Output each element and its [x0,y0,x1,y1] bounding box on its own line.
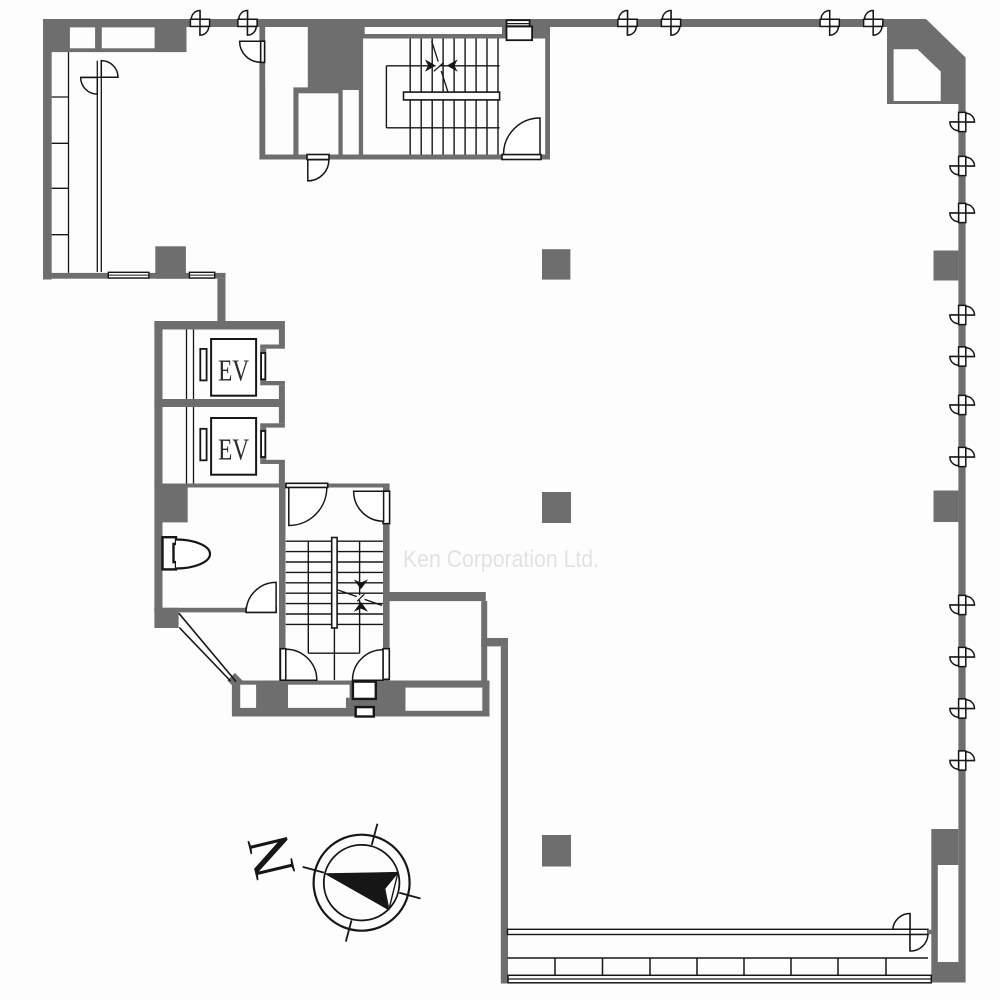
svg-text:Ken Corporation Ltd.: Ken Corporation Ltd. [403,546,599,573]
svg-text:EV: EV [218,432,249,467]
svg-text:EV: EV [218,353,249,388]
